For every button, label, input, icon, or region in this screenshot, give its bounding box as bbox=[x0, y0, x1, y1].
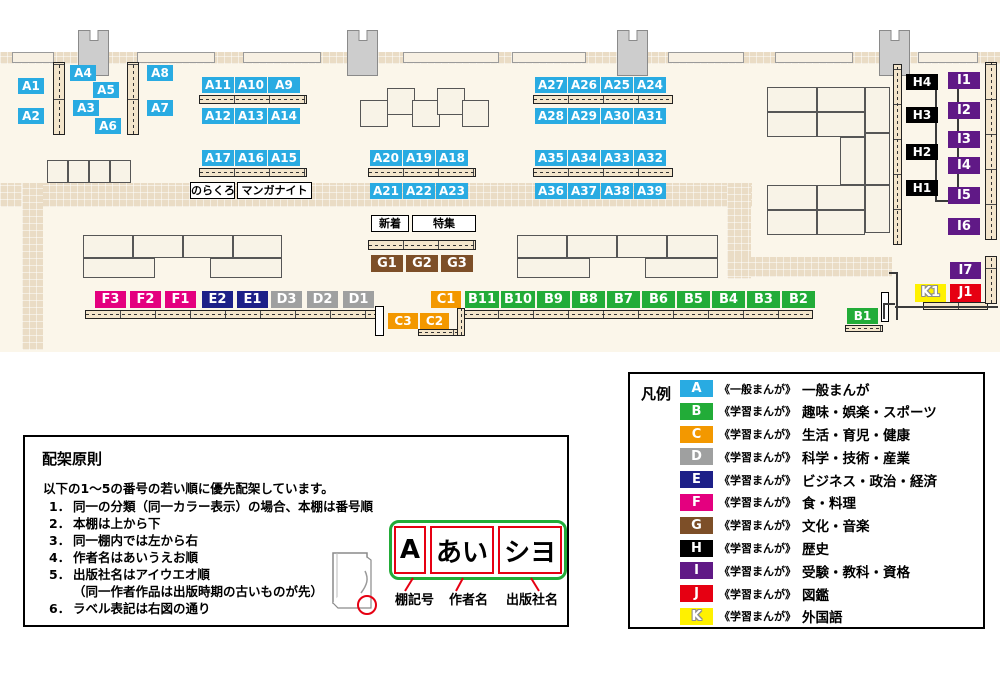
legend-series-type: 《学習まんが》 bbox=[719, 586, 796, 602]
legend-swatch-J: J bbox=[680, 585, 713, 602]
legend-item-E: E《学習まんが》ビジネス・政治・経済 bbox=[680, 471, 937, 488]
reading-table bbox=[865, 185, 890, 233]
shelf-label-H3: H3 bbox=[906, 107, 938, 123]
reading-table bbox=[437, 88, 465, 115]
reading-table bbox=[567, 235, 617, 258]
shelf-label-A12: A12 bbox=[202, 108, 234, 124]
pillar bbox=[617, 30, 648, 76]
wall-window bbox=[12, 52, 54, 63]
legend-item-K: K《学習まんが》外国語 bbox=[680, 608, 937, 625]
shelf-label-K1: K1 bbox=[915, 284, 946, 302]
label-segment-2: あい bbox=[430, 526, 494, 574]
reading-table bbox=[387, 88, 415, 115]
guide-line bbox=[889, 272, 898, 274]
shelf-label-I1: I1 bbox=[948, 72, 980, 89]
legend-category: ビジネス・政治・経済 bbox=[802, 470, 937, 490]
rule-text: 出版社名はアイウエオ順 bbox=[73, 566, 210, 583]
legend-category: 外国語 bbox=[802, 606, 843, 626]
wall-segment bbox=[375, 306, 384, 336]
bookshelf bbox=[533, 168, 673, 177]
legend-box: 凡例 A《一般まんが》一般まんがB《学習まんが》趣味・娯楽・スポーツC《学習まん… bbox=[628, 372, 985, 629]
shelf-label-F1: F1 bbox=[165, 291, 196, 308]
wall-window bbox=[512, 52, 586, 63]
rule-text: 本棚は上から下 bbox=[73, 515, 161, 532]
legend-swatch-I: I bbox=[680, 562, 713, 579]
shelf-label-A36: A36 bbox=[535, 183, 567, 199]
rule-number: 5． bbox=[49, 566, 73, 583]
bookshelf bbox=[893, 64, 902, 245]
walkway-strip bbox=[727, 257, 892, 277]
wall-window bbox=[137, 52, 215, 63]
reading-table bbox=[412, 100, 440, 127]
bookshelf bbox=[418, 329, 460, 336]
shelf-label-A24: A24 bbox=[634, 77, 666, 93]
shelf-label-I4: I4 bbox=[948, 157, 980, 174]
legend-category: 科学・技術・産業 bbox=[802, 447, 910, 467]
shelf-label-A1: A1 bbox=[18, 78, 44, 94]
reading-table bbox=[47, 160, 68, 183]
reading-table bbox=[840, 137, 865, 185]
legend-swatch-C: C bbox=[680, 426, 713, 443]
shelf-label-A27: A27 bbox=[535, 77, 567, 93]
bookshelf bbox=[85, 310, 377, 319]
shelf-label-G1: G1 bbox=[371, 255, 403, 272]
reading-table bbox=[817, 210, 865, 235]
shelf-label-E1: E1 bbox=[237, 291, 268, 308]
shelf-label-B3: B3 bbox=[747, 291, 780, 308]
reading-table bbox=[89, 160, 110, 183]
bookshelf bbox=[463, 310, 813, 319]
shelf-label-B7: B7 bbox=[607, 291, 640, 308]
rule-text: 同一の分類（同一カラー表示）の場合、本棚は番号順 bbox=[73, 498, 373, 515]
reading-table bbox=[83, 258, 155, 278]
legend-swatch-A: A bbox=[680, 380, 713, 397]
reading-table bbox=[183, 235, 233, 258]
shelf-label-A31: A31 bbox=[634, 108, 666, 124]
shelf-callout-2: 新着 bbox=[371, 215, 409, 232]
shelf-label-A32: A32 bbox=[634, 150, 666, 166]
shelf-label-D3: D3 bbox=[271, 291, 302, 308]
guide-line bbox=[896, 272, 898, 320]
shelf-label-A16: A16 bbox=[235, 150, 267, 166]
legend-category: 生活・育児・健康 bbox=[802, 424, 910, 444]
shelf-label-B10: B10 bbox=[501, 291, 535, 308]
shelf-label-A22: A22 bbox=[403, 183, 435, 199]
principles-intro: 以下の1～5の番号の若い順に優先配架しています。 bbox=[43, 478, 334, 497]
shelf-label-A19: A19 bbox=[403, 150, 435, 166]
shelf-label-B8: B8 bbox=[572, 291, 605, 308]
legend-series-type: 《学習まんが》 bbox=[719, 449, 796, 465]
rule-text: 作者名はあいうえお順 bbox=[73, 549, 198, 566]
legend-category: 一般まんが bbox=[802, 379, 870, 399]
legend-category: 食・料理 bbox=[802, 492, 856, 512]
shelf-label-B2: B2 bbox=[782, 291, 815, 308]
guide-line bbox=[935, 200, 949, 202]
shelf-label-F3: F3 bbox=[95, 291, 126, 308]
reading-table bbox=[865, 87, 890, 133]
legend-swatch-G: G bbox=[680, 517, 713, 534]
principles-title: 配架原則 bbox=[42, 448, 102, 469]
shelf-label-B9: B9 bbox=[537, 291, 570, 308]
shelf-label-A21: A21 bbox=[370, 183, 402, 199]
legend-items: A《一般まんが》一般まんがB《学習まんが》趣味・娯楽・スポーツC《学習まんが》生… bbox=[680, 380, 937, 625]
guide-line bbox=[883, 303, 885, 319]
shelf-label-A10: A10 bbox=[235, 77, 267, 93]
shelf-label-A33: A33 bbox=[601, 150, 633, 166]
legend-series-type: 《学習まんが》 bbox=[719, 563, 796, 579]
reading-table bbox=[817, 185, 865, 210]
reading-table bbox=[360, 100, 388, 127]
shelf-label-A15: A15 bbox=[268, 150, 300, 166]
legend-series-type: 《学習まんが》 bbox=[719, 403, 796, 419]
shelf-label-B4: B4 bbox=[712, 291, 745, 308]
shelf-label-A25: A25 bbox=[601, 77, 633, 93]
legend-category: 歴史 bbox=[802, 538, 829, 558]
pillar-notch bbox=[89, 30, 98, 41]
shelf-label-A30: A30 bbox=[601, 108, 633, 124]
legend-category: 趣味・娯楽・スポーツ bbox=[802, 401, 937, 421]
wall-window bbox=[243, 52, 321, 63]
spine-label-diagram: Aあいシヨ bbox=[389, 520, 567, 580]
legend-series-type: 《学習まんが》 bbox=[719, 517, 796, 533]
reading-table bbox=[462, 100, 489, 127]
shelf-label-A18: A18 bbox=[436, 150, 468, 166]
rule-number: 4． bbox=[49, 549, 73, 566]
principles-rules-list: 1．同一の分類（同一カラー表示）の場合、本棚は番号順2．本棚は上から下3．同一棚… bbox=[49, 498, 373, 617]
rule-number: 3． bbox=[49, 532, 73, 549]
shelf-label-E2: E2 bbox=[202, 291, 233, 308]
shelf-label-D2: D2 bbox=[307, 291, 338, 308]
wall-window bbox=[403, 52, 499, 63]
shelf-label-A35: A35 bbox=[535, 150, 567, 166]
pillar-notch bbox=[358, 30, 367, 41]
shelf-label-A37: A37 bbox=[568, 183, 600, 199]
shelf-label-A8: A8 bbox=[147, 65, 173, 81]
principle-rule-2: 2．本棚は上から下 bbox=[49, 515, 373, 532]
bookshelf bbox=[199, 95, 307, 104]
library-floor-map-page: { "colors": { "A": "#29abe2", "B": "#22a… bbox=[0, 0, 1000, 700]
shelf-label-H2: H2 bbox=[906, 144, 938, 160]
legend-item-H: H《学習まんが》歴史 bbox=[680, 540, 937, 557]
reading-table bbox=[83, 235, 133, 258]
principle-rule-6: 6．ラベル表記は右図の通り bbox=[49, 600, 373, 617]
shelf-label-B6: B6 bbox=[642, 291, 675, 308]
legend-item-F: F《学習まんが》食・料理 bbox=[680, 494, 937, 511]
shelf-label-A6: A6 bbox=[95, 118, 121, 134]
wall-window bbox=[775, 52, 853, 63]
shelf-label-J1: J1 bbox=[950, 284, 981, 302]
shelf-label-B11: B11 bbox=[465, 291, 499, 308]
shelf-label-A17: A17 bbox=[202, 150, 234, 166]
shelf-label-C3: C3 bbox=[388, 313, 418, 329]
shelf-label-A7: A7 bbox=[147, 100, 173, 116]
pillar-notch bbox=[628, 30, 637, 41]
shelf-label-A26: A26 bbox=[568, 77, 600, 93]
rule-subtext: （同一作者作品は出版時期の古いものが先） bbox=[49, 583, 373, 600]
legend-series-type: 《学習まんが》 bbox=[719, 608, 796, 624]
shelf-label-A34: A34 bbox=[568, 150, 600, 166]
reading-table bbox=[68, 160, 89, 183]
reading-table bbox=[517, 235, 567, 258]
principle-rule-1: 1．同一の分類（同一カラー表示）の場合、本棚は番号順 bbox=[49, 498, 373, 515]
bookshelf bbox=[199, 168, 307, 177]
shelf-label-D1: D1 bbox=[343, 291, 374, 308]
legend-swatch-D: D bbox=[680, 448, 713, 465]
pillar-notch bbox=[890, 30, 899, 41]
shelf-label-I2: I2 bbox=[948, 102, 980, 119]
principle-rule-5: 5．出版社名はアイウエオ順 bbox=[49, 566, 373, 583]
shelf-label-A9: A9 bbox=[268, 77, 300, 93]
legend-series-type: 《学習まんが》 bbox=[719, 426, 796, 442]
bookshelf bbox=[53, 62, 65, 135]
legend-title: 凡例 bbox=[641, 383, 671, 404]
guide-line bbox=[895, 306, 998, 308]
legend-item-A: A《一般まんが》一般まんが bbox=[680, 380, 937, 397]
shelf-label-G2: G2 bbox=[406, 255, 438, 272]
bookshelf bbox=[457, 308, 465, 336]
shelf-callout-1: マンガナイト bbox=[237, 182, 312, 199]
reading-table bbox=[517, 258, 590, 278]
shelf-label-A23: A23 bbox=[436, 183, 468, 199]
legend-category: 文化・音楽 bbox=[802, 515, 870, 535]
shelf-label-A39: A39 bbox=[634, 183, 666, 199]
shelf-label-F2: F2 bbox=[130, 291, 161, 308]
rule-text: 同一棚内では左から右 bbox=[73, 532, 198, 549]
legend-category: 受験・教科・資格 bbox=[802, 561, 910, 581]
reading-table bbox=[617, 235, 667, 258]
shelf-label-B5: B5 bbox=[677, 291, 710, 308]
bookshelf bbox=[985, 256, 997, 304]
bookshelf bbox=[845, 325, 883, 332]
shelf-label-I6: I6 bbox=[948, 218, 980, 235]
reading-table bbox=[767, 210, 817, 235]
shelf-label-A2: A2 bbox=[18, 108, 44, 124]
shelf-callout-0: のらくろ bbox=[190, 182, 235, 199]
legend-item-B: B《学習まんが》趣味・娯楽・スポーツ bbox=[680, 403, 937, 420]
shelf-label-I3: I3 bbox=[948, 131, 980, 148]
legend-series-type: 《一般まんが》 bbox=[719, 381, 796, 397]
shelf-label-A20: A20 bbox=[370, 150, 402, 166]
label-segment-3: シヨ bbox=[498, 526, 562, 574]
label-segment-1: A bbox=[394, 526, 426, 574]
legend-swatch-E: E bbox=[680, 471, 713, 488]
principle-rule-4: 4．作者名はあいうえお順 bbox=[49, 549, 373, 566]
shelf-label-G3: G3 bbox=[441, 255, 473, 272]
legend-series-type: 《学習まんが》 bbox=[719, 540, 796, 556]
shelf-label-I7: I7 bbox=[950, 262, 981, 279]
shelf-label-A14: A14 bbox=[268, 108, 300, 124]
reading-table bbox=[667, 235, 718, 258]
bookshelf bbox=[533, 95, 673, 104]
rule-text: ラベル表記は右図の通り bbox=[73, 600, 211, 617]
legend-item-G: G《学習まんが》文化・音楽 bbox=[680, 517, 937, 534]
shelf-label-A3: A3 bbox=[73, 100, 99, 116]
reading-table bbox=[133, 235, 183, 258]
bookshelf bbox=[985, 62, 997, 240]
reading-table bbox=[233, 235, 282, 258]
reading-table bbox=[767, 185, 817, 210]
legend-swatch-H: H bbox=[680, 540, 713, 557]
walkway-strip bbox=[22, 183, 43, 350]
reading-table bbox=[645, 258, 718, 278]
bookshelf bbox=[127, 62, 139, 135]
shelf-label-A28: A28 bbox=[535, 108, 567, 124]
pillar bbox=[347, 30, 378, 76]
legend-series-type: 《学習まんが》 bbox=[719, 472, 796, 488]
reading-table bbox=[817, 87, 865, 112]
reading-table bbox=[865, 133, 890, 185]
shelf-label-I5: I5 bbox=[948, 187, 980, 204]
reading-table bbox=[767, 112, 817, 137]
reading-table bbox=[110, 160, 131, 183]
legend-item-I: I《学習まんが》受験・教科・資格 bbox=[680, 562, 937, 579]
reading-table bbox=[767, 87, 817, 112]
legend-series-type: 《学習まんが》 bbox=[719, 494, 796, 510]
legend-item-C: C《学習まんが》生活・育児・健康 bbox=[680, 426, 937, 443]
label-caption-3: 出版社名 bbox=[506, 589, 558, 608]
rule-number: 6． bbox=[49, 600, 73, 617]
shelf-label-A11: A11 bbox=[202, 77, 234, 93]
rule-number: 2． bbox=[49, 515, 73, 532]
shelf-label-C2: C2 bbox=[420, 313, 449, 329]
wall-window bbox=[668, 52, 744, 63]
shelf-label-A5: A5 bbox=[93, 82, 119, 98]
bookshelf bbox=[368, 168, 476, 177]
shelf-label-A29: A29 bbox=[568, 108, 600, 124]
wall-window bbox=[918, 52, 978, 63]
principle-rule-3: 3．同一棚内では左から右 bbox=[49, 532, 373, 549]
legend-item-D: D《学習まんが》科学・技術・産業 bbox=[680, 448, 937, 465]
reading-table bbox=[210, 258, 282, 278]
shelf-callout-3: 特集 bbox=[412, 215, 476, 232]
shelf-label-A13: A13 bbox=[235, 108, 267, 124]
label-caption-2: 作者名 bbox=[449, 589, 488, 608]
shelf-label-H1: H1 bbox=[906, 180, 938, 196]
reading-table bbox=[817, 112, 865, 137]
bookshelf bbox=[368, 240, 476, 250]
shelf-label-A38: A38 bbox=[601, 183, 633, 199]
shelf-label-A4: A4 bbox=[70, 65, 96, 81]
legend-swatch-B: B bbox=[680, 403, 713, 420]
legend-swatch-K: K bbox=[680, 608, 713, 625]
shelving-principles-box: 配架原則 以下の1～5の番号の若い順に優先配架しています。 1．同一の分類（同一… bbox=[23, 435, 569, 627]
shelf-label-C1: C1 bbox=[431, 291, 461, 308]
shelf-label-H4: H4 bbox=[906, 74, 938, 90]
rule-number: 1． bbox=[49, 498, 73, 515]
legend-item-J: J《学習まんが》図鑑 bbox=[680, 585, 937, 602]
legend-category: 図鑑 bbox=[802, 584, 829, 604]
shelf-label-B1: B1 bbox=[847, 308, 878, 324]
legend-swatch-F: F bbox=[680, 494, 713, 511]
label-caption-1: 棚記号 bbox=[395, 589, 434, 608]
